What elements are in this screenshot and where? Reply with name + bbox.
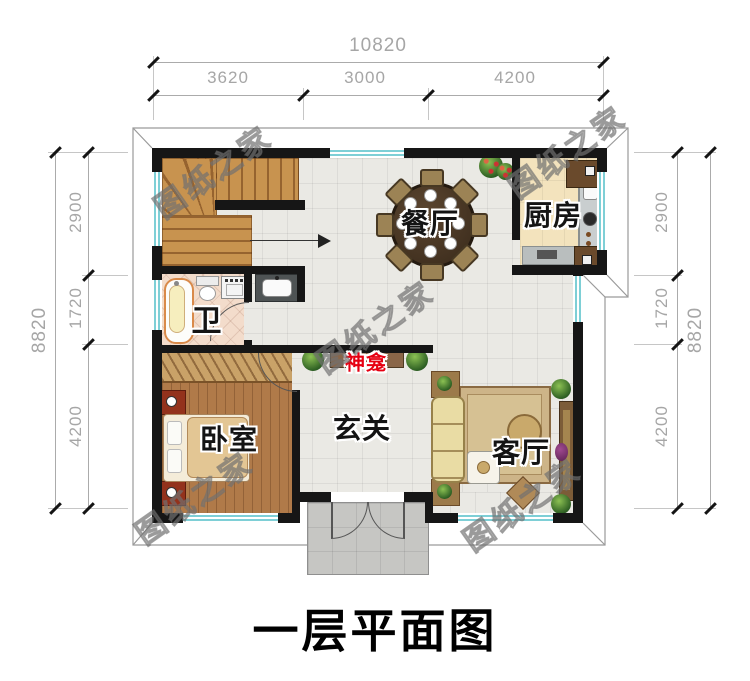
window	[330, 148, 404, 158]
dining-chair	[376, 213, 394, 237]
wall	[152, 148, 162, 172]
dim-label-right-seg1: 2900	[652, 191, 672, 233]
wall	[512, 265, 607, 275]
potted-plant	[437, 376, 452, 391]
bathtub	[164, 278, 194, 344]
stair-direction-line	[250, 240, 320, 241]
dim-label-top-seg2: 3000	[344, 68, 386, 88]
floor-plan-canvas: 10820 3620 3000 4200 8820 2900 1720 4200…	[0, 0, 750, 681]
dim-line	[710, 152, 711, 508]
kitchen-counter-south	[522, 246, 580, 265]
potted-plant	[437, 484, 452, 499]
window	[597, 172, 607, 250]
plate	[424, 245, 437, 258]
wall	[152, 345, 433, 353]
washbasin-sink	[262, 279, 292, 297]
wall	[292, 492, 331, 502]
nightstand	[159, 390, 186, 415]
sofa-side-table	[431, 371, 460, 398]
dim-label-left-seg3: 4200	[66, 405, 86, 447]
potted-plant	[551, 379, 571, 399]
wall	[292, 390, 300, 523]
wall	[215, 200, 305, 210]
kitchen-cooktop	[537, 250, 557, 259]
wall	[152, 266, 305, 274]
plan-title: 一层平面图	[253, 595, 498, 661]
bathtub-faucet	[174, 281, 179, 286]
room-label-bath: 卫	[192, 296, 223, 340]
dim-line	[153, 95, 603, 96]
dim-label-top-seg1: 3620	[207, 68, 249, 88]
dim-label-right-seg3: 4200	[652, 405, 672, 447]
wall	[425, 492, 433, 523]
washer-knobs	[225, 279, 228, 282]
washbasin-faucet	[275, 276, 279, 280]
dim-label-right-seg2: 1720	[652, 287, 672, 329]
dim-line	[55, 152, 56, 508]
window	[573, 276, 583, 322]
stair-direction-arrow	[318, 234, 331, 248]
wall	[152, 246, 162, 280]
porch	[307, 502, 429, 575]
dining-chair	[470, 213, 488, 237]
dim-label-left-seg1: 2900	[66, 191, 86, 233]
cabinet-icon	[582, 255, 592, 265]
dim-line	[153, 62, 603, 63]
pillow	[167, 449, 182, 473]
bathtub-basin	[169, 285, 185, 333]
kitchen-stove-burner	[583, 212, 597, 226]
dim-label-left-seg2: 1720	[66, 287, 86, 329]
kitchen-jars	[586, 232, 591, 237]
dining-chair	[420, 169, 444, 187]
window	[152, 280, 162, 330]
dim-extension	[153, 56, 154, 120]
lamp	[166, 396, 177, 407]
pillow	[167, 421, 182, 445]
dim-label-right-total: 8820	[685, 307, 707, 353]
dim-line	[88, 152, 89, 508]
sofa	[431, 396, 465, 483]
dim-label-top-seg3: 4200	[494, 68, 536, 88]
fridge-icon	[585, 166, 595, 176]
stairs-lower-flight	[162, 215, 252, 268]
dim-label-left-total: 8820	[29, 307, 51, 353]
room-label-dining: 餐厅	[401, 202, 459, 242]
plate	[424, 189, 437, 202]
sofa-side-table	[431, 479, 460, 506]
dim-line	[677, 152, 678, 508]
wall	[573, 322, 583, 523]
washer-door	[226, 284, 243, 296]
washbasin-counter	[255, 274, 299, 302]
dim-label-top-total: 10820	[349, 35, 407, 57]
table-bowl	[477, 461, 490, 474]
room-label-foyer: 玄关	[333, 407, 391, 447]
toilet-tank	[196, 276, 219, 286]
wall	[244, 274, 252, 302]
wall	[297, 266, 305, 302]
